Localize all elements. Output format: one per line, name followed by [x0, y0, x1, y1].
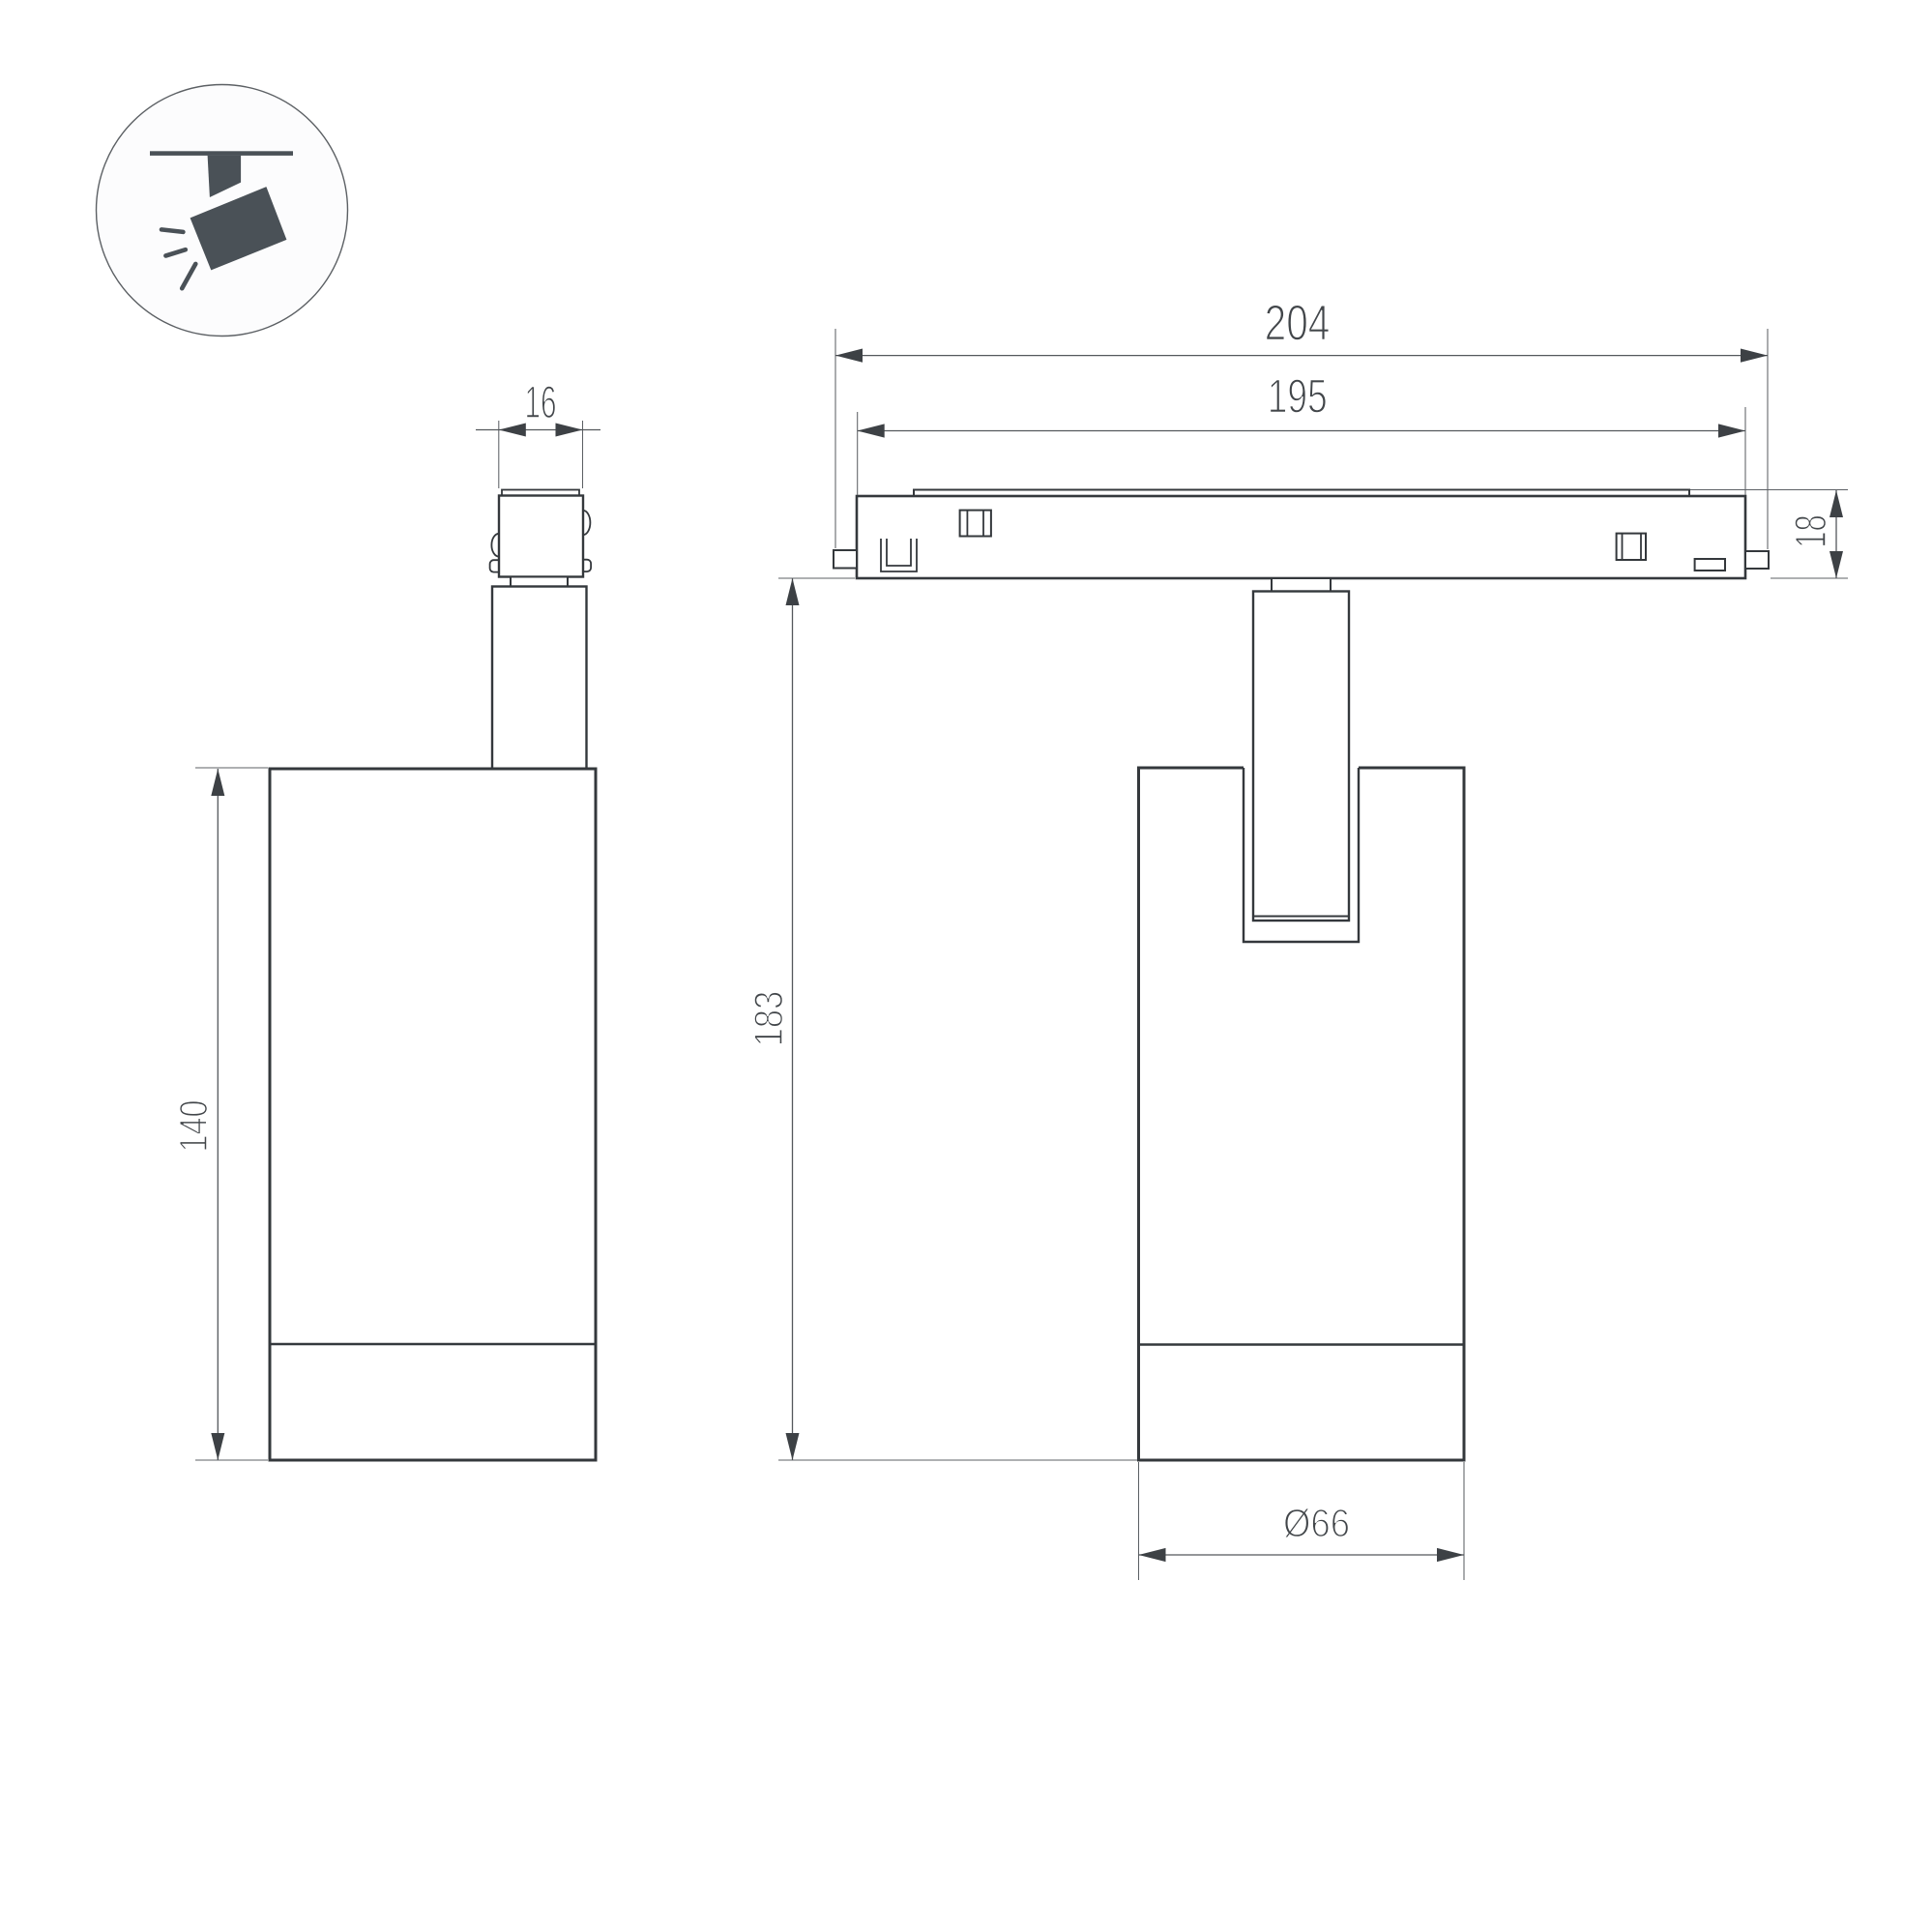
- svg-text:Ø66: Ø66: [1283, 1501, 1350, 1545]
- svg-text:18: 18: [1786, 514, 1835, 548]
- svg-text:140: 140: [171, 1100, 216, 1153]
- svg-text:195: 195: [1268, 371, 1328, 424]
- svg-text:183: 183: [746, 991, 791, 1047]
- svg-text:16: 16: [525, 376, 557, 427]
- svg-text:204: 204: [1265, 296, 1331, 352]
